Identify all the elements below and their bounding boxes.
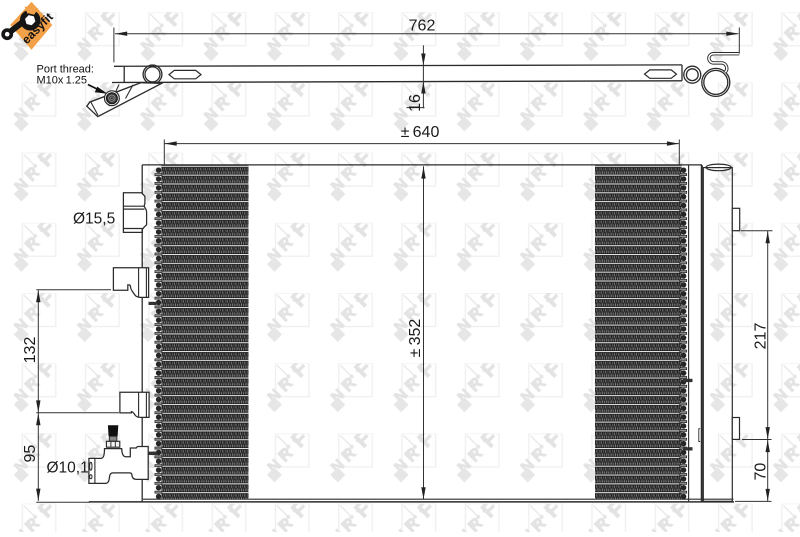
svg-text:217: 217 [753,323,770,350]
svg-text:132: 132 [22,337,39,364]
svg-text:± 352: ± 352 [407,319,424,358]
svg-text:Ø10,1: Ø10,1 [47,460,89,477]
svg-text:762: 762 [409,18,436,35]
svg-text:M10x 1.25: M10x 1.25 [37,75,88,87]
svg-text:Ø15,5: Ø15,5 [73,211,115,228]
svg-text:Port thread:: Port thread: [37,63,94,75]
svg-text:± 640: ± 640 [401,124,440,141]
svg-text:16: 16 [407,94,424,112]
svg-text:95: 95 [22,445,39,463]
svg-text:70: 70 [752,463,769,481]
